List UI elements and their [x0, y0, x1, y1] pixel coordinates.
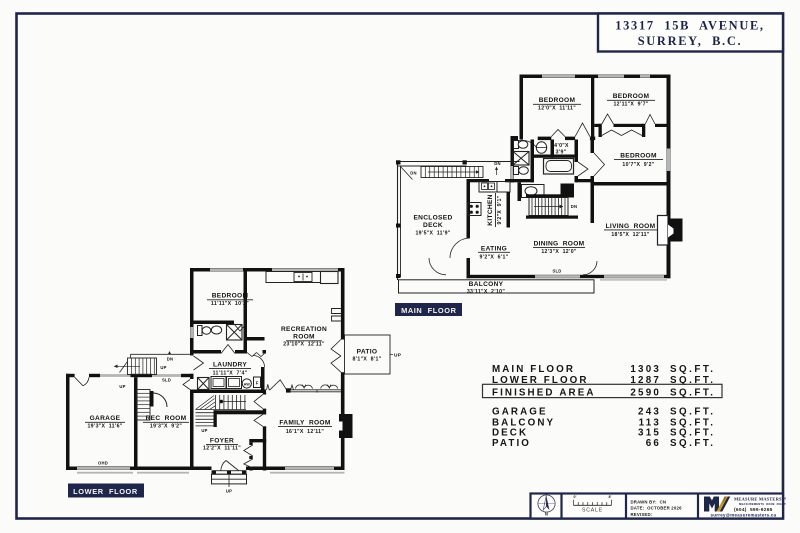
svg-text:LAUNDRY: LAUNDRY [213, 362, 247, 369]
svg-text:ROOM: ROOM [293, 334, 315, 341]
svg-text:SQ.FT.: SQ.FT. [670, 438, 715, 449]
svg-text:PATIO: PATIO [357, 348, 378, 355]
svg-text:REVISED:: REVISED: [631, 512, 653, 517]
svg-text:surrey@measuremasters.ca: surrey@measuremasters.ca [711, 513, 777, 518]
svg-text:11’11"X 10’2": 11’11"X 10’2" [211, 301, 249, 307]
svg-text:SQ.FT.: SQ.FT. [670, 407, 715, 418]
svg-text:3’9": 3’9" [556, 150, 567, 156]
svg-text:DINING ROOM: DINING ROOM [534, 240, 585, 247]
svg-text:DATE: OCTOBER 2026: DATE: OCTOBER 2026 [631, 506, 683, 511]
svg-text:BALCONY: BALCONY [469, 281, 504, 288]
svg-text:BEDROOM: BEDROOM [620, 153, 657, 160]
svg-text:BEDROOM: BEDROOM [212, 293, 249, 300]
svg-text:SLD: SLD [162, 378, 171, 383]
svg-text:113: 113 [639, 417, 661, 428]
svg-text:1303: 1303 [630, 364, 661, 375]
svg-text:8’1"X 8’1": 8’1"X 8’1" [353, 356, 382, 362]
svg-text:DECK: DECK [492, 428, 528, 439]
svg-text:33’11"X 2’10": 33’11"X 2’10" [467, 289, 505, 295]
svg-text:BEDROOM: BEDROOM [613, 93, 650, 100]
svg-text:19’3"X 11’6": 19’3"X 11’6" [87, 423, 122, 429]
svg-text:DECK: DECK [423, 222, 443, 229]
svg-text:OHD: OHD [98, 461, 108, 466]
svg-text:SLD: SLD [553, 269, 562, 274]
svg-text:SQ.FT.: SQ.FT. [670, 364, 715, 375]
svg-text:10’7"X 9’2": 10’7"X 9’2" [622, 162, 654, 168]
svg-text:BALCONY: BALCONY [492, 417, 555, 428]
svg-text:11’11"X 7’4": 11’11"X 7’4" [213, 371, 248, 377]
svg-text:EATING: EATING [481, 245, 507, 252]
svg-text:DN: DN [410, 171, 416, 176]
svg-text:SURREY, B.C.: SURREY, B.C. [638, 34, 743, 48]
svg-text:GARAGE: GARAGE [90, 415, 121, 422]
svg-text:UP: UP [394, 353, 402, 359]
svg-text:12’0"X 11’11": 12’0"X 11’11" [538, 105, 576, 111]
svg-text:LOWER FLOOR: LOWER FLOOR [73, 487, 138, 496]
svg-text:UP: UP [160, 365, 166, 370]
svg-text:FAMILY ROOM: FAMILY ROOM [279, 419, 331, 426]
svg-text:DN: DN [167, 357, 173, 362]
svg-text:SCALE: SCALE [582, 507, 603, 513]
svg-text:23’10"X 12’11": 23’10"X 12’11" [283, 342, 325, 348]
svg-text:SQ.FT.: SQ.FT. [670, 387, 715, 398]
svg-text:LIVING ROOM: LIVING ROOM [606, 223, 656, 230]
svg-text:BEDROOM: BEDROOM [539, 97, 576, 104]
svg-text:9’2"X 9’1": 9’2"X 9’1" [497, 195, 503, 224]
svg-text:243: 243 [638, 407, 661, 418]
svg-text:RECREATION: RECREATION [281, 326, 327, 333]
svg-text:4’0"X: 4’0"X [554, 143, 569, 149]
svg-text:19’3"X 9’2": 19’3"X 9’2" [150, 423, 182, 429]
svg-text:GARAGE: GARAGE [492, 407, 548, 418]
svg-text:9’2"X 6’1": 9’2"X 6’1" [480, 254, 509, 260]
svg-text:0’: 0’ [574, 495, 577, 499]
svg-text:12’2"X 11’11": 12’2"X 11’11" [203, 445, 241, 451]
svg-text:315: 315 [638, 428, 661, 439]
svg-text:66: 66 [646, 438, 661, 449]
svg-text:16’1"X 12’11": 16’1"X 12’11" [286, 429, 324, 435]
svg-text:UP: UP [201, 428, 207, 433]
svg-text:MEASUREMENTS DONE RIGHT: MEASUREMENTS DONE RIGHT [739, 502, 786, 506]
svg-text:SQ.FT.: SQ.FT. [670, 417, 715, 428]
svg-text:MAIN FLOOR: MAIN FLOOR [401, 306, 457, 315]
svg-text:13317 15B AVENUE,: 13317 15B AVENUE, [615, 18, 764, 32]
svg-text:HW: HW [244, 383, 251, 387]
svg-text:N: N [545, 511, 548, 516]
svg-text:UP: UP [226, 489, 232, 494]
svg-text:DRAWN BY: CN: DRAWN BY: CN [631, 500, 667, 505]
svg-text:FINISHED AREA: FINISHED AREA [492, 387, 596, 398]
svg-text:REC ROOM: REC ROOM [146, 415, 187, 422]
svg-text:18’5"X 12’11": 18’5"X 12’11" [611, 232, 649, 238]
svg-text:2590: 2590 [630, 387, 661, 398]
svg-text:8’: 8’ [609, 495, 612, 499]
svg-text:PATIO: PATIO [492, 438, 531, 449]
svg-text:MEASURE MASTERS™: MEASURE MASTERS™ [734, 497, 787, 502]
svg-text:ENCLOSED: ENCLOSED [413, 214, 452, 221]
svg-text:12’3"X 12’0": 12’3"X 12’0" [541, 249, 577, 255]
svg-text:SQ.FT.: SQ.FT. [670, 428, 715, 439]
svg-text:FOYER: FOYER [210, 438, 234, 445]
svg-text:MAIN FLOOR: MAIN FLOOR [492, 364, 575, 375]
svg-text:DN: DN [571, 204, 577, 209]
svg-text:KITCHEN: KITCHEN [487, 194, 494, 225]
svg-text:19’5"X 11’9": 19’5"X 11’9" [415, 231, 450, 237]
svg-text:UP: UP [119, 384, 125, 389]
svg-text:F: F [256, 381, 259, 386]
svg-text:12’11"X 9’7": 12’11"X 9’7" [613, 102, 648, 108]
